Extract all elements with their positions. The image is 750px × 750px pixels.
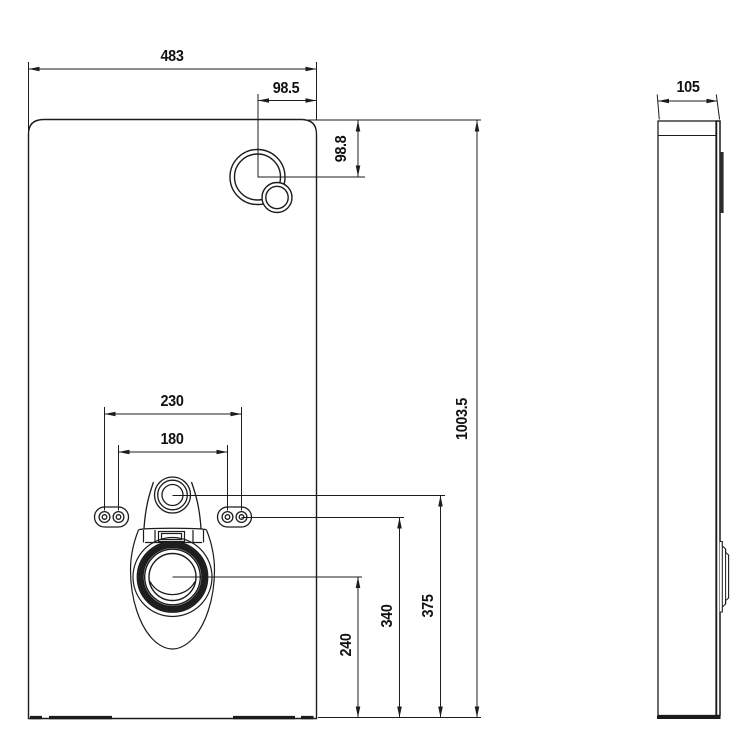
side-glass-panel: [717, 121, 721, 716]
inlet-collar-right: [192, 482, 202, 529]
arrow: [356, 577, 361, 588]
dim-width-label: 483: [161, 48, 184, 66]
left-bracket-hole-pin-1: [102, 515, 107, 520]
arrow: [356, 121, 361, 132]
arrow: [397, 518, 402, 529]
drain-outlet-housing: [131, 528, 215, 649]
arrow: [356, 707, 361, 718]
arrow: [356, 166, 361, 177]
left-bracket-hole-pin-2: [116, 515, 121, 520]
inlet-collar-left: [144, 482, 154, 529]
technical-drawing-sheet: 483 98.5 98.8 230 180 1003.5 375 340 240…: [0, 0, 750, 750]
flush-button: [230, 150, 292, 213]
dim-button-offset-y-label: 98.8: [333, 135, 351, 162]
arrow: [119, 450, 130, 455]
dim-anchor-height-label: 340: [379, 605, 397, 628]
arrow: [475, 707, 480, 718]
dim-105-ext-right: [716, 95, 719, 120]
left-bracket-hole-outer-2: [113, 512, 124, 523]
dimension-lines: [29, 62, 720, 718]
side-flush-button-profile: [720, 152, 724, 213]
arrow: [475, 121, 480, 132]
dim-inlet-height-label: 375: [420, 595, 438, 618]
dim-depth-label: 105: [677, 79, 700, 97]
side-outlet-flange-profile: [720, 542, 729, 613]
dim-anchor-outer-label: 230: [161, 393, 184, 411]
dim-button-offset-x-label: 98.5: [273, 80, 300, 98]
dim-105-ext-left: [657, 95, 659, 120]
drawing-linework: [0, 0, 750, 750]
arrow: [438, 707, 443, 718]
side-view: [657, 121, 729, 717]
arrow: [397, 707, 402, 718]
flange-shoulder-line: [139, 528, 207, 529]
dimension-arrowheads: [29, 67, 718, 718]
side-panel-body: [658, 121, 716, 716]
arrow: [258, 98, 269, 103]
arrow: [658, 99, 669, 104]
water-inlet-fitting: [144, 477, 201, 529]
arrow: [105, 412, 116, 417]
arrow: [217, 450, 228, 455]
arrow: [306, 98, 317, 103]
right-bracket-hole-pin-1: [225, 515, 230, 520]
arrow: [29, 67, 40, 72]
arrow: [231, 412, 242, 417]
arrow: [707, 99, 718, 104]
right-bracket-hole-outer-1: [222, 512, 233, 523]
arrow: [306, 67, 317, 72]
left-bracket-hole-outer-1: [99, 512, 110, 523]
dim-anchor-inner-label: 180: [161, 431, 184, 449]
arrow: [438, 496, 443, 507]
dim-height-label: 1003.5: [454, 398, 472, 440]
dim-drain-height-label: 240: [338, 634, 356, 657]
